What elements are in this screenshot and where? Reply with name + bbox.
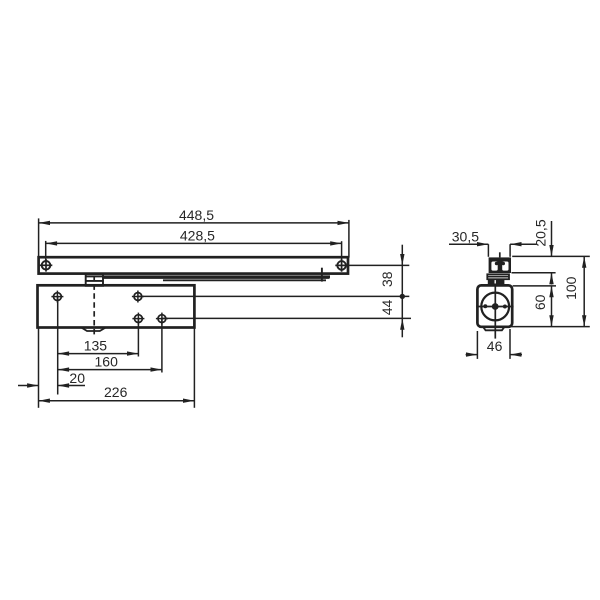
svg-text:30,5: 30,5	[452, 229, 479, 245]
svg-text:226: 226	[104, 384, 128, 400]
svg-text:135: 135	[84, 338, 108, 354]
svg-text:20,5: 20,5	[533, 219, 549, 246]
svg-text:160: 160	[95, 354, 119, 370]
svg-text:428,5: 428,5	[180, 227, 215, 243]
svg-text:44: 44	[379, 300, 395, 316]
svg-text:20: 20	[69, 370, 85, 386]
svg-text:448,5: 448,5	[179, 207, 214, 223]
svg-text:38: 38	[379, 271, 395, 287]
svg-text:60: 60	[532, 294, 548, 310]
svg-text:100: 100	[563, 276, 579, 300]
svg-text:46: 46	[487, 338, 503, 354]
